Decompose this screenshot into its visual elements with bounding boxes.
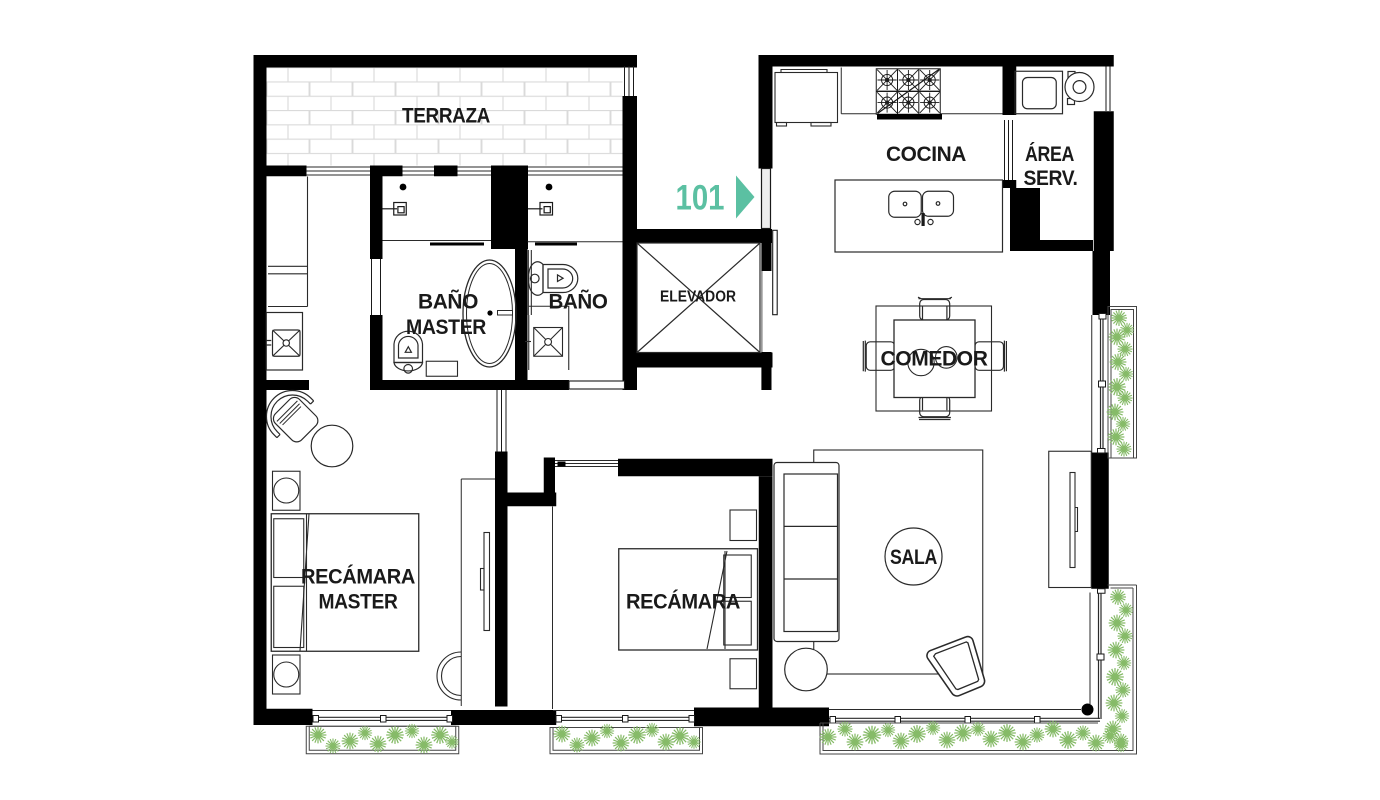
svg-text:BAÑO: BAÑO bbox=[549, 291, 608, 314]
svg-text:RECÁMARA: RECÁMARA bbox=[626, 591, 740, 614]
svg-text:COMEDOR: COMEDOR bbox=[881, 348, 988, 371]
svg-text:ÁREA: ÁREA bbox=[1025, 143, 1074, 166]
svg-text:SALA: SALA bbox=[890, 546, 937, 569]
svg-text:101: 101 bbox=[676, 178, 725, 218]
svg-text:SERV.: SERV. bbox=[1024, 167, 1078, 190]
svg-text:COCINA: COCINA bbox=[886, 143, 966, 166]
svg-text:ELEVADOR: ELEVADOR bbox=[660, 289, 736, 306]
svg-text:BAÑO: BAÑO bbox=[418, 291, 478, 314]
svg-text:RECÁMARA: RECÁMARA bbox=[301, 566, 415, 589]
svg-text:MASTER: MASTER bbox=[319, 591, 398, 614]
svg-text:TERRAZA: TERRAZA bbox=[402, 105, 490, 128]
svg-text:MASTER: MASTER bbox=[406, 316, 486, 339]
